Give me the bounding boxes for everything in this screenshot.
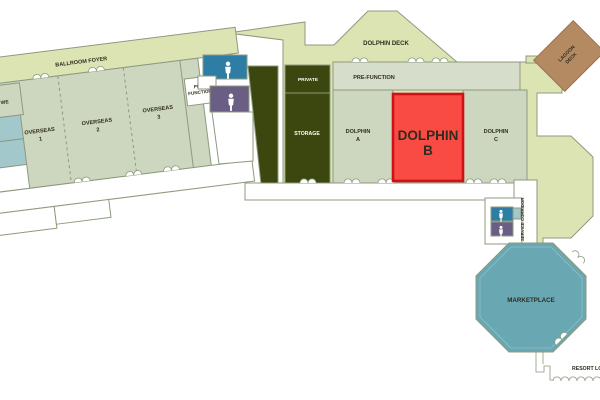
room-dolphin-a[interactable] [333,90,393,183]
room-label-dolphin-c: C [494,137,498,143]
door-arc [572,249,586,263]
room-label-resort-lobby: RESORT LOBBY [572,366,600,372]
small-room-white [0,165,30,193]
room-label-pre-function: PRE-FUNCTION [353,75,395,81]
room-label-private: PRIVATE [298,77,319,83]
door-arc [585,377,600,381]
room-label-dolphin-c: DOLPHIN [484,129,509,135]
room-label-dolphin-deck: DOLPHIN DECK [363,41,409,47]
room-label-service-corridor: SERVICE CORRIDOR [520,197,525,241]
room-label-storage: STORAGE [294,131,320,137]
floor-plan-canvas: LAGOON DECK DOLPHIN B BALLRO [0,0,600,400]
room-label-dolphin-a: A [356,137,360,143]
room-label-partial-west: WE [0,99,9,106]
corridor [245,183,537,200]
room-label-marketplace: MARKETPLACE [507,297,554,304]
mens-restroom [203,55,247,79]
door-arc [569,377,585,381]
resort-corridor [536,349,553,380]
floor-plan: LAGOON DECK DOLPHIN B BALLRO [0,0,600,400]
room-label-dolphin-a: DOLPHIN [346,129,371,135]
room-white [212,112,253,164]
room-label-dolphin-b: B [423,143,433,158]
small-room-teal [0,139,27,169]
room-storage[interactable] [285,93,330,184]
door-arc [553,377,569,381]
room-label-dolphin-b: DOLPHIN [398,128,459,143]
